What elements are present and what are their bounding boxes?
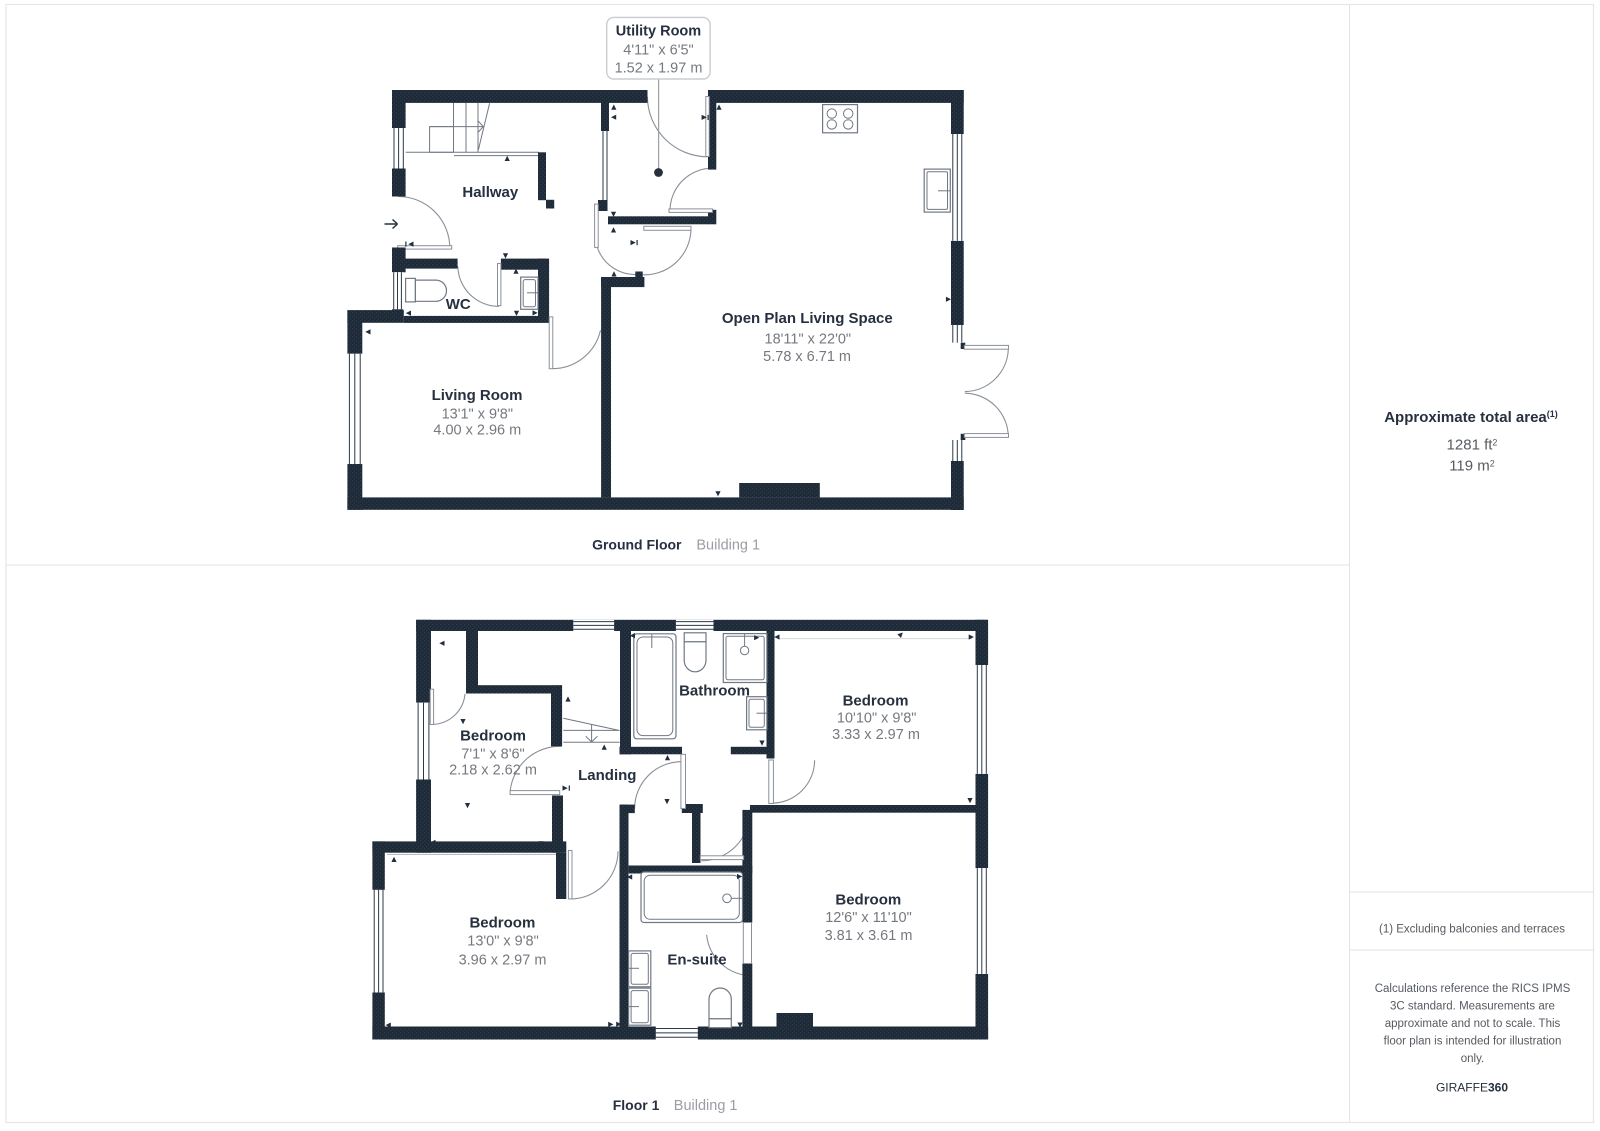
svg-text:Floor 1: Floor 1 (613, 1097, 660, 1113)
svg-text:Bedroom: Bedroom (835, 891, 901, 908)
svg-text:only.: only. (1461, 1053, 1484, 1065)
svg-text:Bathroom: Bathroom (679, 682, 750, 699)
svg-text:12'6" x 11'10": 12'6" x 11'10" (825, 910, 912, 926)
svg-text:approximate and not to scale.: approximate and not to scale. This (1385, 1018, 1561, 1030)
svg-text:Bedroom: Bedroom (469, 914, 535, 931)
svg-text:3.96 x 2.97 m: 3.96 x 2.97 m (459, 953, 547, 969)
svg-text:5.78 x 6.71 m: 5.78 x 6.71 m (763, 349, 851, 365)
svg-text:Bedroom: Bedroom (460, 727, 526, 744)
svg-text:Approximate total area(1): Approximate total area(1) (1384, 409, 1558, 426)
svg-text:Building 1: Building 1 (696, 538, 760, 554)
svg-text:floor plan is intended for ill: floor plan is intended for illustration (1384, 1036, 1562, 1048)
svg-text:7'1" x 8'6": 7'1" x 8'6" (461, 747, 524, 763)
svg-text:2.18 x 2.62 m: 2.18 x 2.62 m (449, 763, 537, 779)
svg-text:Building 1: Building 1 (674, 1098, 738, 1114)
svg-text:GIRAFFE360: GIRAFFE360 (1436, 1080, 1508, 1094)
svg-text:13'1" x 9'8": 13'1" x 9'8" (442, 406, 513, 422)
svg-text:En-suite: En-suite (667, 951, 726, 968)
svg-text:1281 ft2: 1281 ft2 (1447, 437, 1498, 454)
svg-text:18'11" x 22'0": 18'11" x 22'0" (765, 332, 852, 348)
svg-text:Open Plan Living Space: Open Plan Living Space (722, 310, 893, 327)
svg-text:3.33 x 2.97 m: 3.33 x 2.97 m (832, 727, 920, 743)
svg-text:1.52 x 1.97 m: 1.52 x 1.97 m (615, 61, 703, 77)
svg-text:13'0" x 9'8": 13'0" x 9'8" (467, 934, 538, 950)
svg-text:10'10" x 9'8": 10'10" x 9'8" (837, 711, 917, 727)
svg-text:Hallway: Hallway (462, 184, 519, 201)
svg-text:Calculations reference the RIC: Calculations reference the RICS IPMS (1375, 983, 1571, 995)
svg-text:(1) Excluding balconies and te: (1) Excluding balconies and terraces (1379, 924, 1565, 936)
svg-text:Landing: Landing (578, 767, 636, 784)
svg-text:3C standard. Measurements are: 3C standard. Measurements are (1390, 1001, 1555, 1013)
svg-text:4.00 x 2.96 m: 4.00 x 2.96 m (433, 423, 521, 439)
svg-text:4'11" x 6'5": 4'11" x 6'5" (623, 43, 693, 59)
svg-text:WC: WC (446, 296, 471, 313)
svg-text:Ground Floor: Ground Floor (592, 537, 682, 553)
svg-text:119 m2: 119 m2 (1449, 458, 1495, 475)
svg-text:3.81 x 3.61 m: 3.81 x 3.61 m (825, 928, 913, 944)
svg-text:Living Room: Living Room (432, 387, 523, 404)
svg-text:Bedroom: Bedroom (843, 692, 909, 709)
svg-text:Utility Room: Utility Room (616, 24, 701, 40)
